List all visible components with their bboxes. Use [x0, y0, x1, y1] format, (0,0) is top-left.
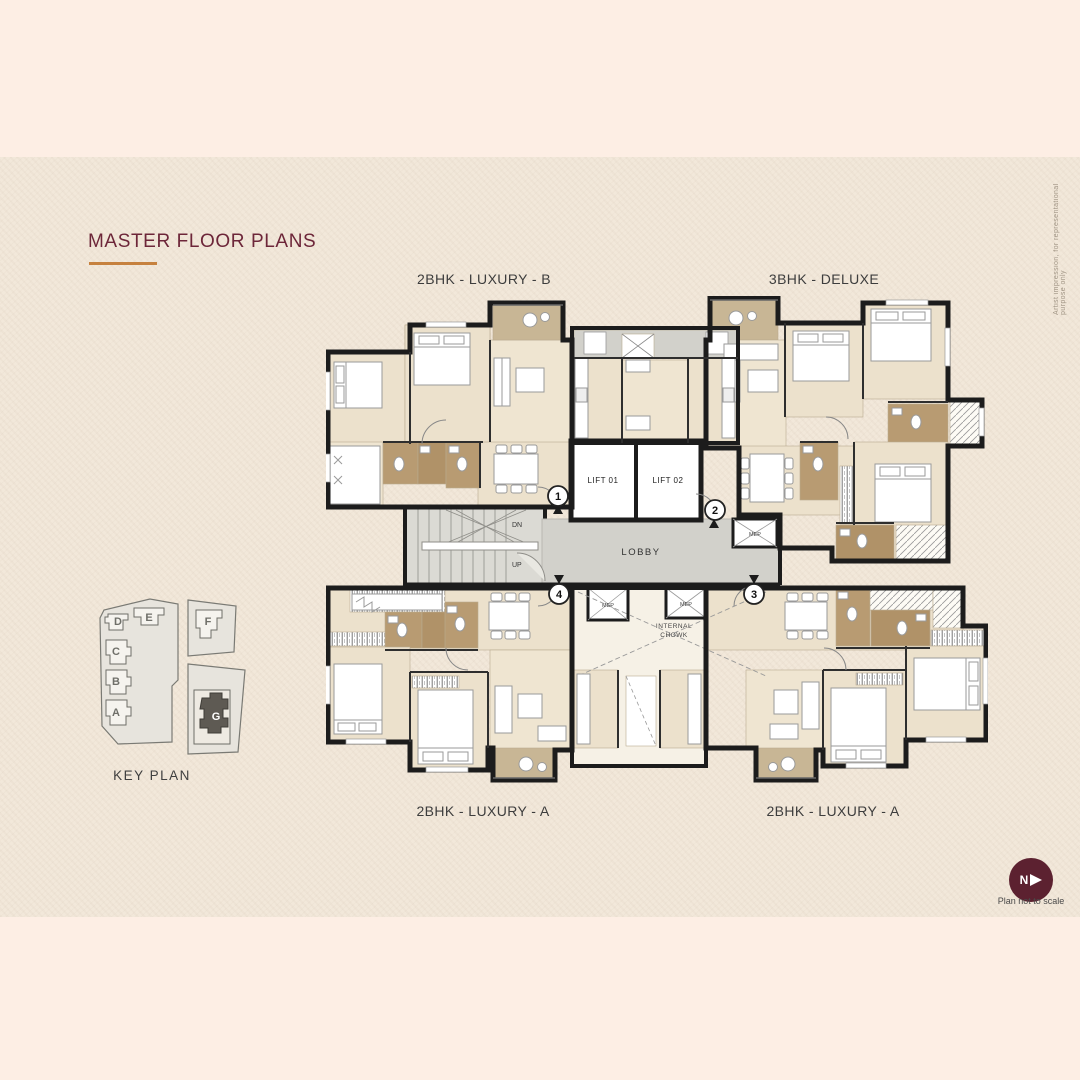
entrance-1: 1	[555, 491, 561, 503]
key-plan-label-e: E	[145, 612, 152, 624]
mep-label-chowk-right: MEP	[680, 602, 692, 608]
key-plan-label-b: B	[112, 676, 120, 688]
key-plan-caption: KEY PLAN	[113, 768, 191, 783]
lobby-label: LOBBY	[621, 547, 660, 558]
floor-plan-svg: DN UP LOBBY LIFT 01 LIFT 02 MEP MEP MEP …	[326, 296, 988, 794]
lift-01-label: LIFT 01	[588, 476, 619, 485]
title-underline	[89, 262, 157, 265]
key-plan-label-a: A	[112, 707, 120, 719]
entrance-3: 3	[751, 589, 757, 601]
north-arrow-icon	[1030, 874, 1042, 886]
north-letter: N	[1020, 873, 1029, 887]
stair-up-label: UP	[512, 562, 522, 569]
key-plan: D E C B A F G	[90, 594, 250, 760]
lift-02-label: LIFT 02	[653, 476, 684, 485]
key-plan-label-g: G	[212, 711, 221, 723]
lift-block: LIFT 01 LIFT 02	[571, 441, 701, 520]
floor-plan: DN UP LOBBY LIFT 01 LIFT 02 MEP MEP MEP …	[326, 296, 988, 794]
unit-label-bottom-left: 2BHK - LUXURY - A	[416, 803, 549, 819]
key-plan-label-d: D	[114, 616, 122, 628]
entrance-2: 2	[712, 505, 718, 517]
key-plan-label-f: F	[205, 616, 212, 628]
unit-label-top-right: 3BHK - DELUXE	[769, 271, 879, 287]
page-title: MASTER FLOOR PLANS	[88, 231, 316, 253]
unit-label-top-left: 2BHK - LUXURY - B	[417, 271, 551, 287]
side-disclaimer: Artist impression, for representational …	[1053, 165, 1067, 315]
key-plan-svg: D E C B A F G	[90, 594, 250, 760]
unit-label-bottom-right: 2BHK - LUXURY - A	[766, 803, 899, 819]
key-plan-label-c: C	[112, 646, 120, 658]
mep-label-right: MEP	[749, 532, 761, 538]
stair-dn-label: DN	[512, 522, 522, 529]
scale-note: Plan not to scale	[998, 896, 1065, 906]
internal-chowk-label-1: INTERNAL	[656, 623, 692, 630]
entrance-4: 4	[556, 589, 563, 601]
internal-chowk-label-2: CHOWK	[660, 632, 688, 639]
